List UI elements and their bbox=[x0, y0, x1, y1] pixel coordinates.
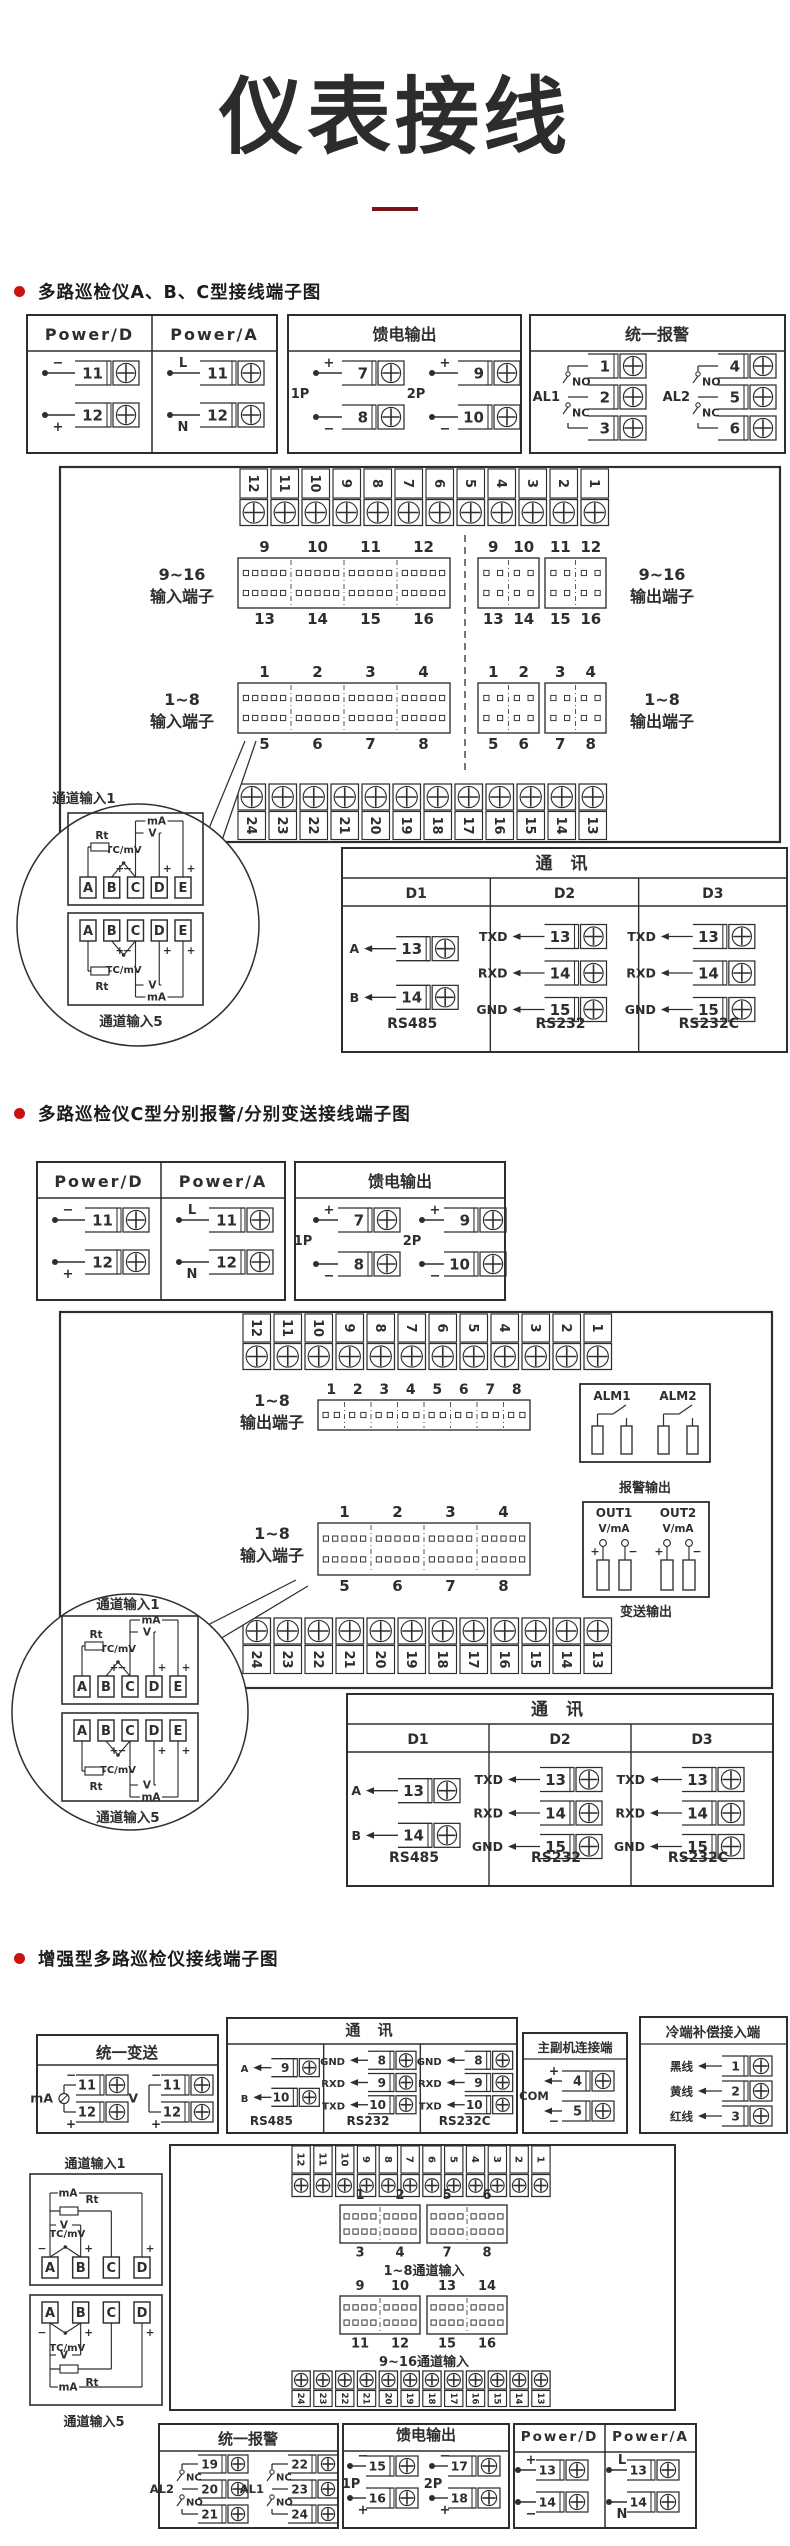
svg-text:−: − bbox=[63, 1203, 74, 1218]
svg-text:5: 5 bbox=[339, 1577, 349, 1595]
svg-text:NO: NO bbox=[572, 376, 591, 389]
svg-text:13: 13 bbox=[539, 2463, 556, 2478]
svg-text:6: 6 bbox=[482, 2188, 491, 2203]
svg-text:GND: GND bbox=[472, 1839, 503, 1854]
svg-text:ALM2: ALM2 bbox=[659, 1389, 696, 1403]
svg-text:2: 2 bbox=[600, 388, 610, 406]
svg-text:−: − bbox=[66, 2068, 76, 2082]
svg-text:V: V bbox=[60, 2220, 69, 2232]
svg-text:8: 8 bbox=[474, 2054, 482, 2068]
svg-text:D1: D1 bbox=[407, 1732, 428, 1748]
svg-text:B: B bbox=[101, 1724, 111, 1739]
svg-text:+: + bbox=[53, 420, 64, 435]
svg-text:11: 11 bbox=[351, 2337, 369, 2352]
svg-text:1: 1 bbox=[586, 479, 601, 488]
svg-text:23: 23 bbox=[279, 1650, 294, 1668]
svg-text:3: 3 bbox=[355, 2246, 364, 2261]
svg-text:6: 6 bbox=[392, 1577, 402, 1595]
svg-text:通道输入5: 通道输入5 bbox=[96, 1809, 159, 1826]
svg-text:1: 1 bbox=[259, 663, 269, 681]
svg-text:8: 8 bbox=[378, 2054, 386, 2068]
svg-text:4: 4 bbox=[498, 1503, 508, 1521]
svg-text:6: 6 bbox=[519, 735, 529, 753]
svg-text:15: 15 bbox=[527, 1650, 542, 1668]
unified-alarm-box-3: 统一报警192021NCNOAL2222324NCNOAL1 bbox=[150, 2424, 338, 2528]
svg-text:11: 11 bbox=[316, 2153, 327, 2167]
svg-text:12: 12 bbox=[248, 1319, 263, 1337]
svg-text:RS485: RS485 bbox=[389, 1850, 439, 1866]
svg-text:A: A bbox=[83, 924, 93, 939]
svg-text:RS232: RS232 bbox=[347, 2114, 390, 2128]
svg-text:10: 10 bbox=[307, 474, 322, 492]
svg-text:RXD: RXD bbox=[473, 1806, 503, 1821]
svg-text:RS232C: RS232C bbox=[668, 1850, 728, 1866]
svg-text:12: 12 bbox=[92, 1253, 113, 1271]
svg-text:D: D bbox=[149, 1724, 160, 1739]
svg-text:16: 16 bbox=[369, 2491, 387, 2506]
power-box-1: Power/DPower/A11−12+11L12N bbox=[27, 315, 277, 453]
svg-text:1: 1 bbox=[488, 663, 498, 681]
svg-text:3: 3 bbox=[555, 663, 565, 681]
svg-text:11: 11 bbox=[279, 1319, 294, 1337]
svg-text:9~16通道输入: 9~16通道输入 bbox=[379, 2354, 469, 2370]
svg-text:17: 17 bbox=[451, 2459, 468, 2474]
svg-text:6: 6 bbox=[425, 2156, 436, 2163]
svg-text:C: C bbox=[131, 881, 141, 896]
svg-text:7: 7 bbox=[555, 735, 565, 753]
svg-text:D: D bbox=[149, 1680, 160, 1695]
svg-text:D: D bbox=[154, 881, 165, 896]
svg-text:A: A bbox=[45, 2306, 55, 2321]
svg-text:统一报警: 统一报警 bbox=[218, 2430, 278, 2448]
svg-text:10: 10 bbox=[449, 1255, 470, 1273]
feed-output-box-2: 馈电输出1P7+8−2P9+10− bbox=[294, 1162, 506, 1300]
svg-text:D1: D1 bbox=[405, 886, 426, 902]
svg-text:1: 1 bbox=[600, 357, 610, 375]
svg-text:B: B bbox=[107, 924, 117, 939]
svg-text:L: L bbox=[179, 356, 187, 371]
svg-text:15: 15 bbox=[360, 610, 381, 628]
svg-text:21: 21 bbox=[341, 1650, 356, 1668]
svg-text:E: E bbox=[174, 1680, 183, 1695]
svg-text:RS232C: RS232C bbox=[679, 1016, 739, 1032]
svg-text:7: 7 bbox=[358, 364, 368, 382]
svg-text:+: + bbox=[430, 1203, 441, 1218]
svg-text:8: 8 bbox=[382, 2156, 393, 2163]
svg-text:TXD: TXD bbox=[474, 1772, 503, 1787]
svg-text:NC: NC bbox=[702, 407, 719, 420]
svg-text:5: 5 bbox=[488, 735, 498, 753]
svg-text:N: N bbox=[617, 2507, 628, 2522]
svg-text:Power/A: Power/A bbox=[170, 325, 258, 344]
svg-text:报警输出: 报警输出 bbox=[619, 1480, 671, 1496]
svg-text:23: 23 bbox=[291, 2482, 308, 2496]
svg-text:RS485: RS485 bbox=[250, 2114, 293, 2128]
svg-text:+: + bbox=[146, 2243, 155, 2255]
svg-text:7: 7 bbox=[403, 1323, 418, 1332]
svg-text:10: 10 bbox=[391, 2279, 409, 2294]
svg-text:15: 15 bbox=[522, 816, 537, 834]
svg-text:8: 8 bbox=[586, 735, 596, 753]
svg-text:+: + bbox=[187, 863, 196, 875]
svg-text:22: 22 bbox=[291, 2457, 308, 2471]
power-box-2: Power/DPower/A11−12+11L12N bbox=[37, 1162, 285, 1300]
svg-text:4: 4 bbox=[573, 2075, 582, 2090]
svg-text:+: + bbox=[549, 2063, 559, 2078]
svg-text:D: D bbox=[154, 924, 165, 939]
page: 仪表接线 多路巡检仪A、B、C型接线端子图 多路巡检仪C型分别报警/分别变送接线… bbox=[0, 0, 790, 2546]
svg-text:12: 12 bbox=[216, 1253, 237, 1271]
svg-text:+: + bbox=[146, 2327, 155, 2339]
svg-text:22: 22 bbox=[310, 1650, 325, 1668]
svg-text:3: 3 bbox=[527, 1323, 542, 1332]
svg-text:12: 12 bbox=[295, 2153, 306, 2167]
svg-text:−: − bbox=[151, 2068, 161, 2082]
svg-text:9: 9 bbox=[281, 2061, 289, 2075]
svg-text:6: 6 bbox=[730, 419, 740, 437]
svg-text:AL2: AL2 bbox=[150, 2482, 174, 2496]
svg-text:OUT1: OUT1 bbox=[596, 1506, 632, 1520]
svg-text:10: 10 bbox=[513, 538, 534, 556]
svg-text:19: 19 bbox=[404, 2393, 414, 2405]
svg-text:2P: 2P bbox=[407, 387, 426, 402]
svg-text:Power/D: Power/D bbox=[54, 1172, 143, 1191]
svg-text:GND: GND bbox=[476, 1002, 507, 1017]
svg-text:Power/A: Power/A bbox=[612, 2429, 689, 2445]
svg-text:1: 1 bbox=[534, 2156, 545, 2163]
svg-text:22: 22 bbox=[339, 2393, 349, 2405]
svg-text:输入端子: 输入端子 bbox=[150, 712, 214, 731]
svg-text:Rt: Rt bbox=[89, 1781, 102, 1793]
svg-text:mA: mA bbox=[30, 2091, 53, 2106]
svg-text:9: 9 bbox=[378, 2076, 386, 2090]
svg-text:3: 3 bbox=[600, 419, 610, 437]
svg-text:RXD: RXD bbox=[418, 2079, 442, 2090]
svg-text:RS232: RS232 bbox=[535, 1016, 585, 1032]
svg-text:A: A bbox=[83, 881, 93, 896]
svg-text:TXD: TXD bbox=[479, 929, 508, 944]
svg-text:21: 21 bbox=[361, 2393, 371, 2405]
svg-text:13: 13 bbox=[545, 1771, 566, 1789]
wiring-diagram-canvas: Power/DPower/A11−12+11L12N馈电输出1P7+8−2P9+… bbox=[0, 0, 790, 2546]
svg-text:GND: GND bbox=[614, 1839, 645, 1854]
svg-text:9: 9 bbox=[474, 2076, 482, 2090]
svg-text:1: 1 bbox=[589, 1323, 604, 1332]
comm-box-3: 通 讯9A10BRS4858GND9RXD10TXDRS2328GND9RXD1… bbox=[227, 2018, 517, 2133]
svg-text:3: 3 bbox=[524, 479, 539, 488]
svg-text:A: A bbox=[77, 1724, 87, 1739]
svg-text:mA: mA bbox=[147, 992, 167, 1004]
svg-text:RXD: RXD bbox=[321, 2079, 345, 2090]
svg-text:11: 11 bbox=[360, 538, 381, 556]
feed-output-box-3: 馈电输出1P15−16+2P17−18+ bbox=[342, 2424, 509, 2528]
channel-detail-column: 通道输入1ABCD−++TC/mVVRtmAABCD−++TC/mVVRtmA通… bbox=[30, 2156, 162, 2430]
svg-text:21: 21 bbox=[336, 816, 351, 834]
svg-text:15: 15 bbox=[550, 610, 571, 628]
svg-text:B: B bbox=[107, 881, 117, 896]
svg-text:+: + bbox=[66, 2117, 76, 2131]
svg-text:16: 16 bbox=[478, 2337, 496, 2352]
svg-text:A: A bbox=[349, 941, 359, 956]
svg-text:RS485: RS485 bbox=[387, 1016, 437, 1032]
svg-text:14: 14 bbox=[401, 989, 422, 1007]
svg-text:6: 6 bbox=[459, 1382, 469, 1398]
svg-text:9: 9 bbox=[474, 364, 484, 382]
svg-text:13: 13 bbox=[438, 2279, 456, 2294]
svg-text:13: 13 bbox=[687, 1771, 708, 1789]
svg-text:7: 7 bbox=[485, 1382, 495, 1398]
svg-text:馈电输出: 馈电输出 bbox=[372, 325, 436, 344]
svg-text:mA: mA bbox=[58, 2188, 78, 2200]
svg-text:−: − bbox=[38, 2243, 47, 2255]
svg-text:NO: NO bbox=[276, 2498, 293, 2509]
svg-text:2: 2 bbox=[312, 663, 322, 681]
svg-text:18: 18 bbox=[429, 816, 444, 834]
svg-text:1P: 1P bbox=[294, 1234, 313, 1249]
svg-text:12: 12 bbox=[391, 2337, 409, 2352]
svg-text:TXD: TXD bbox=[627, 929, 656, 944]
svg-text:V: V bbox=[60, 2350, 69, 2362]
svg-text:4: 4 bbox=[469, 2156, 480, 2163]
svg-text:馈电输出: 馈电输出 bbox=[368, 1172, 432, 1191]
svg-text:NO: NO bbox=[702, 376, 721, 389]
svg-text:9: 9 bbox=[341, 1323, 356, 1332]
svg-text:5: 5 bbox=[462, 479, 477, 488]
svg-text:7: 7 bbox=[445, 1577, 455, 1595]
svg-text:9: 9 bbox=[360, 2156, 371, 2163]
svg-text:D3: D3 bbox=[702, 886, 723, 902]
svg-text:11: 11 bbox=[82, 364, 103, 382]
svg-text:馈电输出: 馈电输出 bbox=[395, 2426, 456, 2444]
svg-text:C: C bbox=[107, 2261, 117, 2276]
svg-text:15: 15 bbox=[438, 2337, 456, 2352]
svg-text:5: 5 bbox=[432, 1382, 442, 1398]
svg-text:D3: D3 bbox=[691, 1732, 712, 1748]
svg-text:11: 11 bbox=[78, 2079, 96, 2094]
svg-text:D: D bbox=[137, 2261, 148, 2276]
svg-text:+: + bbox=[440, 2503, 451, 2518]
svg-text:8: 8 bbox=[498, 1577, 508, 1595]
svg-text:RXD: RXD bbox=[615, 1806, 645, 1821]
svg-text:L: L bbox=[618, 2453, 626, 2468]
svg-text:4: 4 bbox=[406, 1382, 416, 1398]
svg-text:mA: mA bbox=[147, 816, 167, 828]
svg-text:通道输入1: 通道输入1 bbox=[64, 2156, 125, 2172]
svg-text:18: 18 bbox=[451, 2491, 468, 2506]
feed-output-box-1: 馈电输出1P7+8−2P9+10− bbox=[288, 315, 521, 453]
svg-text:24: 24 bbox=[243, 816, 258, 834]
svg-text:13: 13 bbox=[483, 610, 504, 628]
alarm-output-module: ALM1ALM2报警输出 bbox=[580, 1384, 710, 1496]
svg-text:9: 9 bbox=[355, 2279, 364, 2294]
svg-text:N: N bbox=[187, 1267, 198, 1282]
svg-text:13: 13 bbox=[535, 2393, 545, 2405]
master-slave-box: 主副机连接端COM4+5− bbox=[519, 2033, 627, 2133]
svg-text:冷端补偿接入端: 冷端补偿接入端 bbox=[666, 2024, 761, 2041]
svg-text:+: + bbox=[187, 945, 196, 957]
svg-text:−: − bbox=[324, 422, 335, 437]
svg-text:Rt: Rt bbox=[89, 1629, 102, 1641]
svg-text:−: − bbox=[430, 1269, 441, 1284]
svg-text:2P: 2P bbox=[403, 1234, 422, 1249]
svg-text:8: 8 bbox=[418, 735, 428, 753]
svg-text:E: E bbox=[174, 1724, 183, 1739]
svg-text:+: + bbox=[182, 1745, 191, 1757]
svg-text:5: 5 bbox=[465, 1323, 480, 1332]
svg-text:16: 16 bbox=[580, 610, 601, 628]
svg-text:6: 6 bbox=[312, 735, 322, 753]
svg-text:17: 17 bbox=[465, 1650, 480, 1668]
svg-text:N: N bbox=[178, 420, 189, 435]
svg-text:Rt: Rt bbox=[85, 2194, 98, 2206]
svg-text:8: 8 bbox=[354, 1255, 364, 1273]
svg-text:Rt: Rt bbox=[95, 830, 108, 842]
svg-text:C: C bbox=[107, 2306, 117, 2321]
svg-text:11: 11 bbox=[92, 1211, 113, 1229]
svg-text:mA: mA bbox=[58, 2382, 78, 2394]
svg-text:Rt: Rt bbox=[95, 981, 108, 993]
svg-text:E: E bbox=[179, 881, 188, 896]
svg-text:9: 9 bbox=[488, 538, 498, 556]
svg-text:+: + bbox=[163, 945, 172, 957]
svg-text:13: 13 bbox=[589, 1650, 604, 1668]
svg-text:13: 13 bbox=[550, 928, 571, 946]
svg-text:1: 1 bbox=[339, 1503, 349, 1521]
svg-text:18: 18 bbox=[434, 1650, 449, 1668]
svg-text:3: 3 bbox=[365, 663, 375, 681]
svg-text:9: 9 bbox=[460, 1211, 470, 1229]
svg-text:1: 1 bbox=[355, 2188, 364, 2203]
svg-text:2: 2 bbox=[513, 2156, 524, 2163]
svg-text:13: 13 bbox=[401, 940, 422, 958]
svg-text:变送输出: 变送输出 bbox=[620, 1604, 672, 1620]
svg-text:10: 10 bbox=[310, 1319, 325, 1337]
svg-text:12: 12 bbox=[82, 406, 103, 424]
svg-text:9~16: 9~16 bbox=[639, 565, 686, 584]
svg-text:2P: 2P bbox=[424, 2477, 443, 2492]
svg-text:+: + bbox=[158, 1662, 167, 1674]
svg-text:14: 14 bbox=[630, 2495, 648, 2510]
svg-text:B: B bbox=[101, 1680, 111, 1695]
svg-text:14: 14 bbox=[539, 2495, 557, 2510]
svg-text:通 讯: 通 讯 bbox=[345, 2021, 398, 2039]
svg-text:COM: COM bbox=[519, 2089, 549, 2103]
svg-text:−: − bbox=[324, 1269, 335, 1284]
svg-text:B: B bbox=[350, 990, 360, 1005]
svg-text:7: 7 bbox=[354, 1211, 364, 1229]
svg-text:2: 2 bbox=[519, 663, 529, 681]
svg-text:24: 24 bbox=[295, 2393, 305, 2405]
comm-box-2: 通 讯D1D2D313A14BRS48513TXD14RXD15GNDRS232… bbox=[347, 1694, 773, 1886]
svg-text:V/mA: V/mA bbox=[662, 1523, 694, 1535]
svg-text:5: 5 bbox=[447, 2156, 458, 2163]
svg-text:−: − bbox=[692, 1545, 701, 1558]
svg-text:4: 4 bbox=[395, 2246, 404, 2261]
svg-text:E: E bbox=[179, 924, 188, 939]
svg-text:C: C bbox=[125, 1724, 135, 1739]
svg-text:15: 15 bbox=[369, 2459, 386, 2474]
svg-text:14: 14 bbox=[478, 2279, 496, 2294]
svg-text:9: 9 bbox=[259, 538, 269, 556]
svg-text:−: − bbox=[628, 1545, 637, 1558]
svg-text:1P: 1P bbox=[291, 387, 310, 402]
svg-text:AL2: AL2 bbox=[663, 390, 690, 405]
svg-text:V: V bbox=[143, 1780, 152, 1792]
svg-text:12: 12 bbox=[245, 474, 260, 492]
svg-text:TXD: TXD bbox=[419, 2101, 442, 2112]
svg-text:10: 10 bbox=[466, 2098, 483, 2112]
svg-text:Power/A: Power/A bbox=[179, 1172, 267, 1191]
svg-text:D2: D2 bbox=[554, 886, 575, 902]
svg-text:10: 10 bbox=[273, 2091, 290, 2105]
svg-text:+: + bbox=[590, 1545, 599, 1558]
svg-text:4: 4 bbox=[493, 479, 508, 488]
svg-text:B: B bbox=[76, 2306, 86, 2321]
svg-text:13: 13 bbox=[584, 816, 599, 834]
svg-text:2: 2 bbox=[558, 1323, 573, 1332]
svg-text:A: A bbox=[241, 2064, 249, 2075]
svg-text:18: 18 bbox=[426, 2393, 436, 2405]
svg-text:7: 7 bbox=[404, 2156, 415, 2163]
svg-text:B: B bbox=[76, 2261, 86, 2276]
svg-text:5: 5 bbox=[573, 2105, 582, 2120]
svg-text:+: + bbox=[324, 356, 335, 371]
svg-text:+: + bbox=[158, 1745, 167, 1757]
svg-text:输出端子: 输出端子 bbox=[240, 1413, 304, 1432]
svg-text:16: 16 bbox=[413, 610, 434, 628]
svg-text:A: A bbox=[77, 1680, 87, 1695]
unified-transmit-box: 统一变送1112−+mA1112−+V bbox=[30, 2035, 218, 2133]
svg-text:2: 2 bbox=[555, 479, 570, 488]
transmit-output-module: OUT1V/mA+−OUT2V/mA+−变送输出 bbox=[583, 1502, 709, 1620]
svg-text:AL1: AL1 bbox=[533, 390, 560, 405]
svg-text:1: 1 bbox=[326, 1382, 336, 1398]
svg-text:13: 13 bbox=[403, 1782, 424, 1800]
svg-text:14: 14 bbox=[307, 610, 328, 628]
svg-text:14: 14 bbox=[698, 964, 719, 982]
svg-text:−: − bbox=[440, 422, 451, 437]
svg-text:ALM1: ALM1 bbox=[593, 1389, 630, 1403]
svg-text:10: 10 bbox=[307, 538, 328, 556]
svg-text:5: 5 bbox=[259, 735, 269, 753]
comm-box-1: 通 讯D1D2D313A14BRS48513TXD14RXD15GNDRS232… bbox=[342, 848, 787, 1052]
channel-detail-balloon-1: 通道输入1ABCDE+−++TC/mVRtVmAABCDE+−++TC/mVRt… bbox=[17, 741, 259, 1046]
svg-text:1~8: 1~8 bbox=[254, 1524, 290, 1543]
svg-text:3: 3 bbox=[491, 2156, 502, 2163]
svg-text:3: 3 bbox=[445, 1503, 455, 1521]
svg-text:−: − bbox=[53, 356, 64, 371]
svg-text:3: 3 bbox=[731, 2109, 740, 2124]
svg-text:14: 14 bbox=[558, 1650, 573, 1668]
svg-text:11: 11 bbox=[550, 538, 571, 556]
svg-text:2: 2 bbox=[731, 2084, 740, 2099]
svg-text:24: 24 bbox=[248, 1650, 263, 1668]
svg-text:V: V bbox=[128, 2091, 138, 2106]
svg-text:Power/D: Power/D bbox=[45, 325, 134, 344]
svg-text:1~8通道输入: 1~8通道输入 bbox=[384, 2263, 465, 2279]
svg-text:+: + bbox=[358, 2503, 369, 2518]
svg-text:通 讯: 通 讯 bbox=[536, 854, 594, 874]
svg-text:10: 10 bbox=[463, 408, 484, 426]
svg-text:+: + bbox=[84, 2243, 93, 2255]
svg-text:RXD: RXD bbox=[478, 966, 508, 981]
svg-text:−: − bbox=[549, 2113, 559, 2128]
svg-text:23: 23 bbox=[317, 2393, 327, 2405]
svg-text:16: 16 bbox=[491, 816, 506, 834]
svg-text:14: 14 bbox=[403, 1827, 424, 1845]
svg-text:GND: GND bbox=[417, 2057, 442, 2068]
svg-text:8: 8 bbox=[358, 408, 368, 426]
